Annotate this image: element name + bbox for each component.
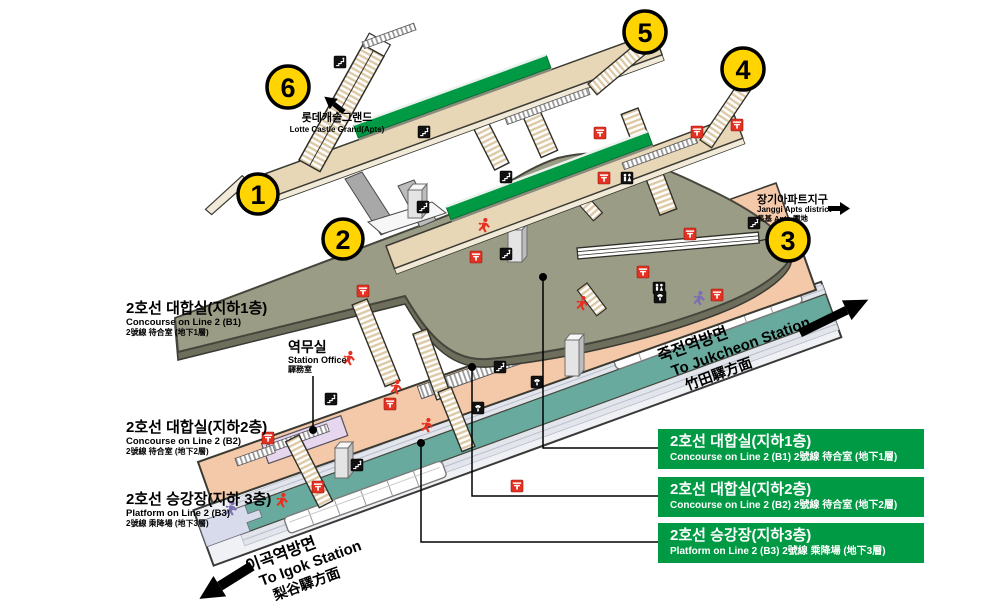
- exit-number: 4: [735, 55, 750, 85]
- station-office-hanja: 驛務室: [288, 364, 312, 374]
- telephone-icon: [654, 291, 666, 303]
- station-office-label: 역무실 Station Office 驛務室: [288, 339, 347, 374]
- restroom-icon: [621, 172, 633, 184]
- landmark-janggi: 장기아파트지구 Janggi Apts district 長基 Apts 團地: [757, 192, 850, 223]
- station-office-ko: 역무실: [288, 339, 327, 355]
- escalator-icon: [351, 459, 363, 471]
- legend-box-b1: 2호선 대합실(지하1층) Concourse on Line 2 (B1) 2…: [658, 429, 924, 469]
- legend-en: Concourse on Line 2 (B2) 2號線 待合室 (地下2層): [670, 498, 897, 511]
- level-label-hanja: 2號線 待合室 (地下2層): [126, 446, 209, 456]
- legend-en: Concourse on Line 2 (B1) 2號線 待合室 (地下1層): [670, 450, 897, 463]
- ticket-machine-icon: [711, 289, 723, 301]
- escalator-icon: [494, 361, 506, 373]
- landmark-ko: 롯데캐슬그랜드: [302, 110, 373, 124]
- exit-number: 5: [637, 18, 652, 48]
- station-office-en: Station Office: [288, 355, 347, 365]
- escalator-icon: [500, 248, 512, 260]
- escalator-icon: [500, 171, 512, 183]
- ticket-machine-icon: [684, 228, 696, 240]
- telephone-icon: [472, 402, 484, 414]
- ticket-machine-icon: [637, 266, 649, 278]
- landmark-en: Lotte Castle Grand(Apts): [290, 125, 385, 134]
- exit-number: 2: [335, 225, 350, 255]
- legend-ko: 2호선 대합실(지하2층): [670, 481, 811, 498]
- exit-1-badge: 1: [238, 174, 278, 214]
- exit-3-badge: 3: [767, 219, 809, 261]
- ticket-machine-icon: [357, 285, 369, 297]
- ticket-machine-icon: [691, 126, 703, 138]
- level-label-hanja: 2號線 乘降場 (地下3層): [126, 518, 209, 528]
- legend-box-b3: 2호선 승강장(지하3층) Platform on Line 2 (B3) 2號…: [658, 523, 924, 563]
- ticket-machine-icon: [598, 172, 610, 184]
- exit-6-badge: 6: [267, 66, 309, 108]
- arrow-to-igok: [193, 556, 258, 608]
- level-label-en: Platform on Line 2 (B3): [126, 508, 230, 519]
- exit-number: 6: [280, 73, 295, 103]
- level-label-ko: 2호선 승강장(지하 3층): [126, 490, 271, 508]
- station-diagram-canvas: 1 2 3 4 5 6 2호선 대합실(지하1층) Concourse on L…: [0, 0, 1000, 608]
- level-label-en: Concourse on Line 2 (B1): [126, 317, 241, 328]
- exit-4-badge: 4: [722, 48, 764, 90]
- ticket-machine-icon: [511, 480, 523, 492]
- escalator-icon: [325, 393, 337, 405]
- telephone-icon: [531, 376, 543, 388]
- level-label-ko: 2호선 대합실(지하1층): [126, 300, 267, 317]
- ticket-machine-icon: [384, 398, 396, 410]
- legend-box-b2: 2호선 대합실(지하2층) Concourse on Line 2 (B2) 2…: [658, 477, 924, 517]
- escalator-icon: [417, 201, 429, 213]
- exit-2-badge: 2: [323, 219, 363, 259]
- level-label-en: Concourse on Line 2 (B2): [126, 436, 241, 447]
- ticket-machine-icon: [594, 127, 606, 139]
- exit-5-badge: 5: [624, 11, 666, 53]
- landmark-hanja: 長基 Apts 團地: [757, 213, 808, 223]
- level-label-hanja: 2號線 待合室 (地下1層): [126, 327, 209, 337]
- landmark-en: Janggi Apts district: [757, 205, 832, 214]
- legend-ko: 2호선 대합실(지하1층): [670, 433, 811, 450]
- legend-ko: 2호선 승강장(지하3층): [670, 526, 811, 544]
- escalator-icon: [418, 126, 430, 138]
- exit-number: 1: [250, 180, 265, 210]
- ticket-machine-icon: [312, 481, 324, 493]
- ticket-machine-icon: [470, 251, 482, 263]
- level-label-ko: 2호선 대합실(지하2층): [126, 419, 267, 436]
- exit-number: 3: [780, 226, 795, 256]
- station-map: 1 2 3 4 5 6 2호선 대합실(지하1층) Concourse on L…: [0, 0, 1000, 608]
- landmark-ko: 장기아파트지구: [757, 192, 828, 206]
- legend-en: Platform on Line 2 (B3) 2號線 乘降場 (地下3層): [670, 544, 886, 557]
- ticket-machine-icon: [731, 119, 743, 131]
- escalator-icon: [334, 56, 346, 68]
